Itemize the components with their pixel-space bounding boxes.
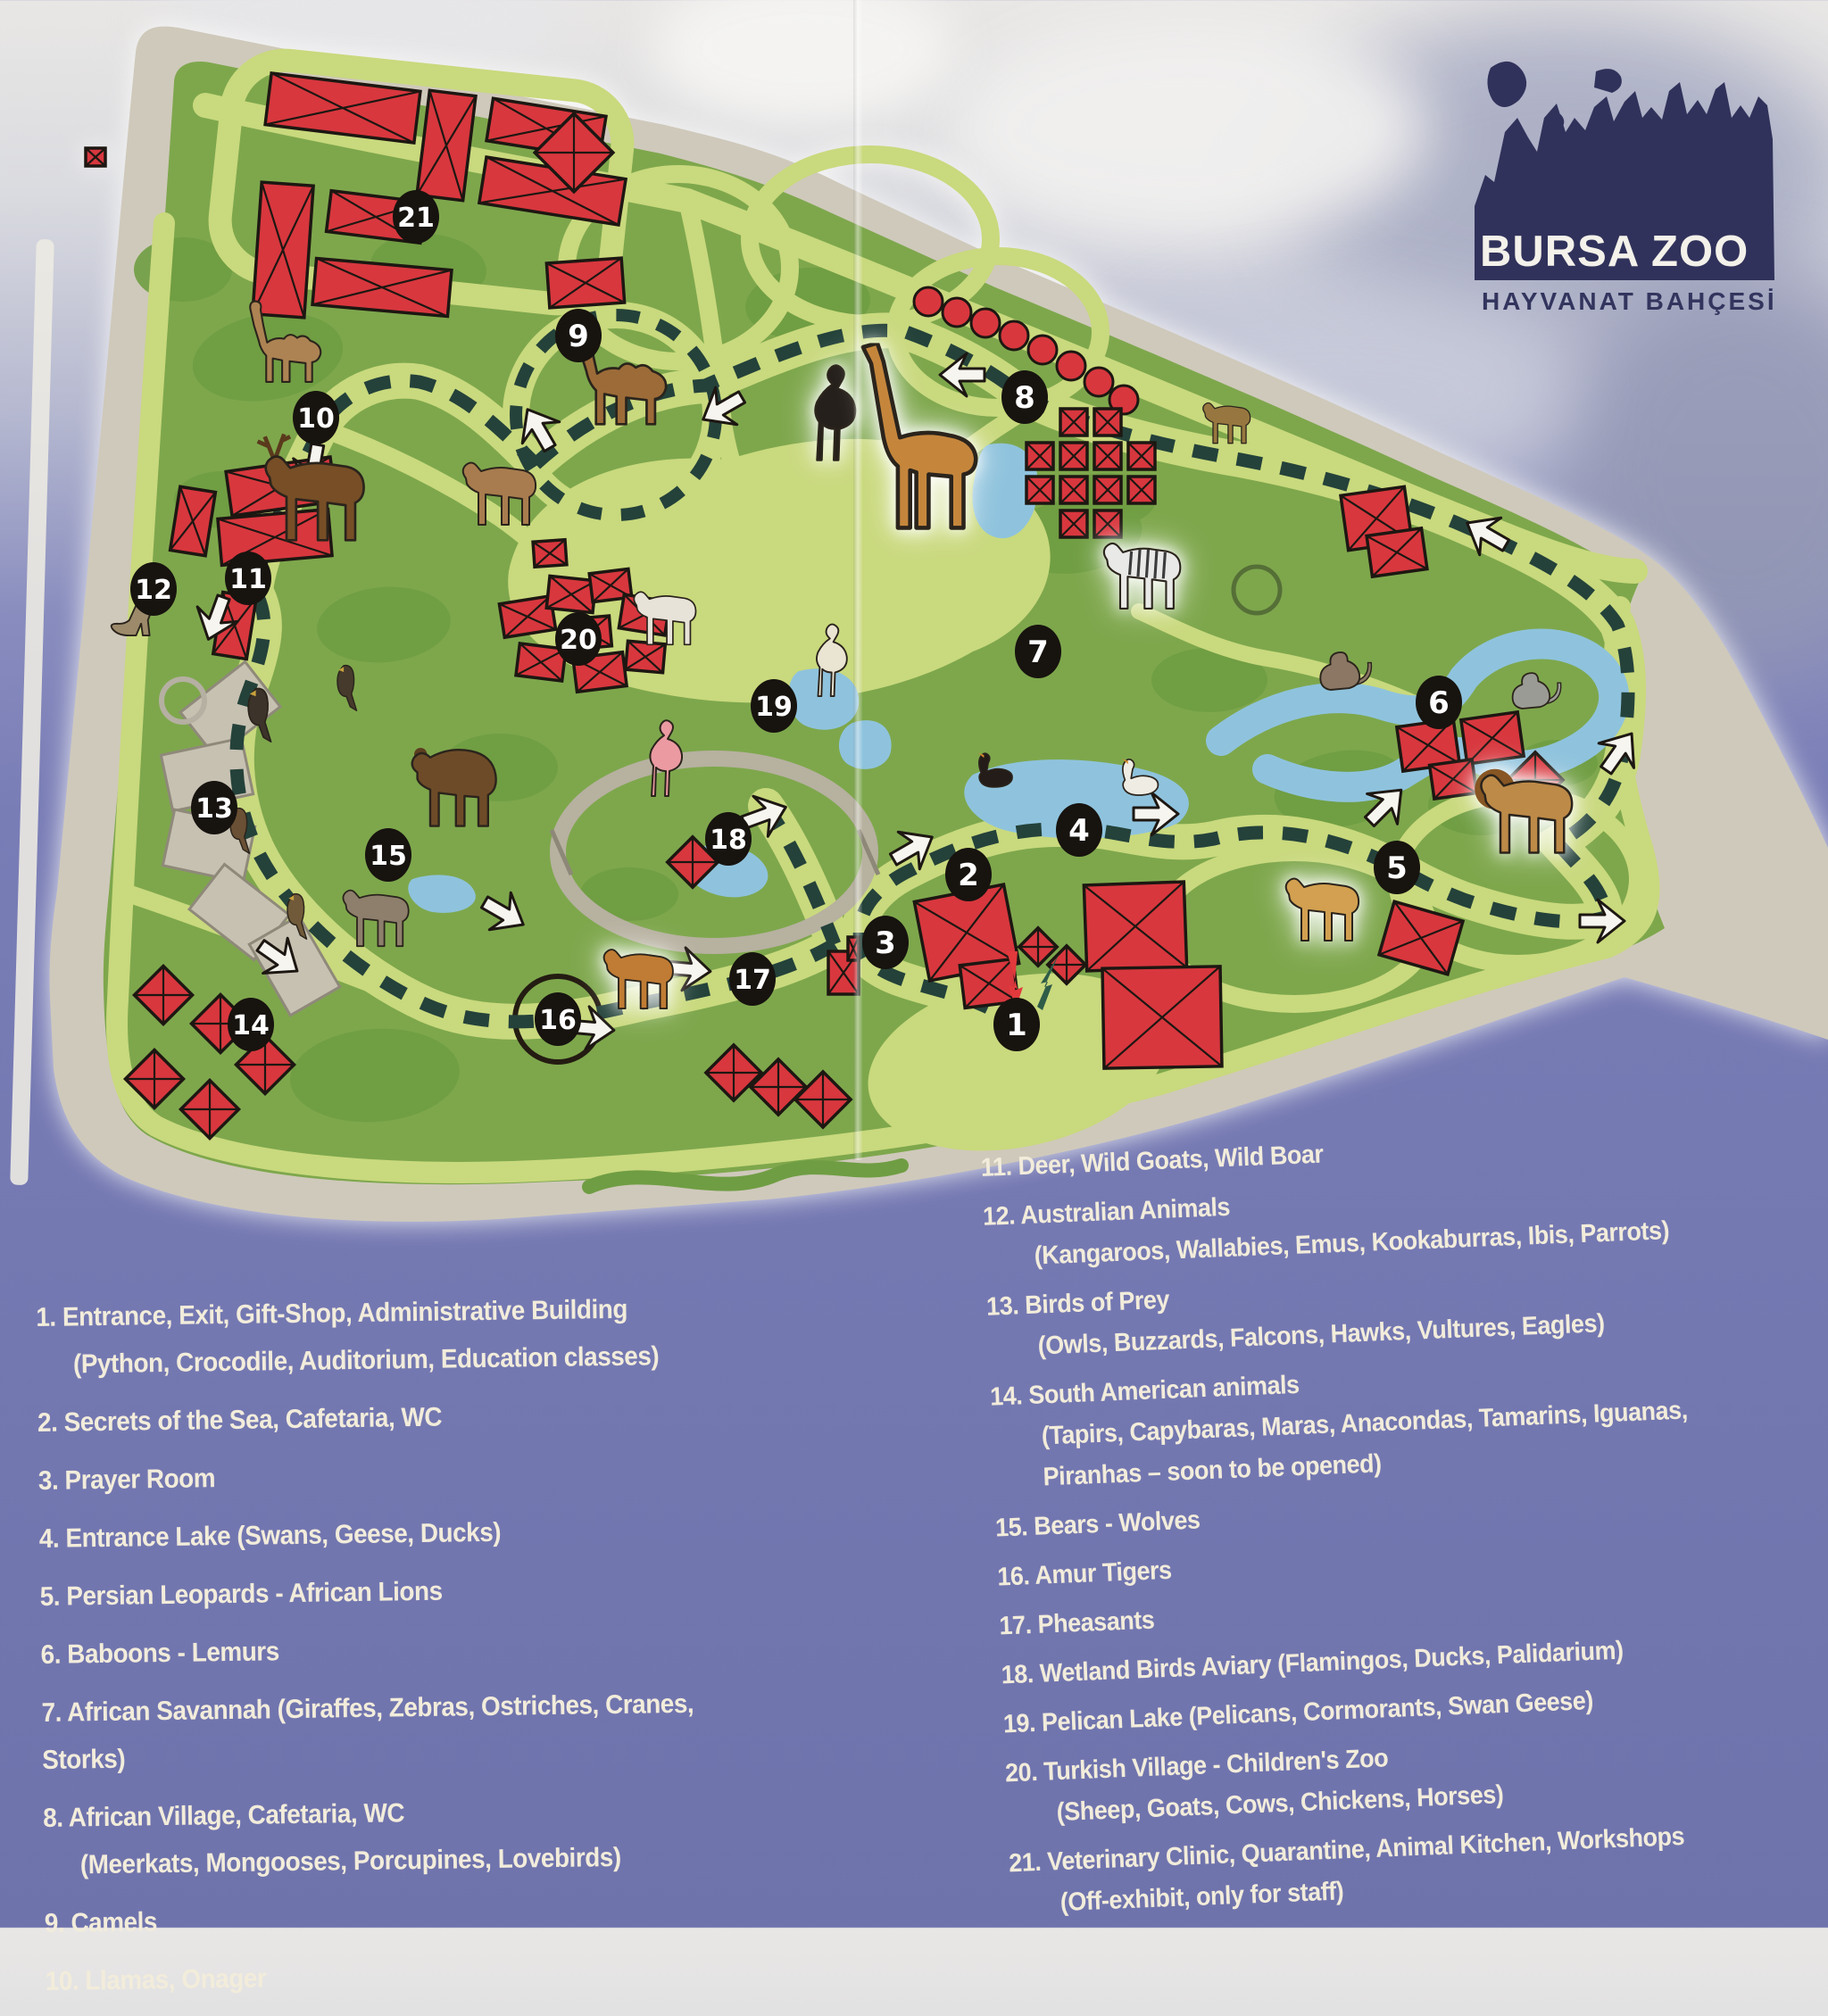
map-marker-11: 11	[225, 552, 271, 605]
legend-column-left: 1. Entrance, Exit, Gift-Shop, Administra…	[36, 1285, 702, 2016]
svg-text:7: 7	[1027, 635, 1049, 670]
map-marker-17: 17	[729, 952, 776, 1006]
legend-item: 14. South American animals(Tapirs, Capyb…	[989, 1344, 1807, 1499]
legend-item-text: 2. Secrets of the Sea, Cafetaria, WC	[37, 1390, 694, 1447]
svg-text:20: 20	[560, 625, 597, 656]
svg-text:13: 13	[195, 793, 233, 825]
red-dot-feature	[914, 287, 943, 316]
map-marker-10: 10	[293, 391, 339, 444]
map-marker-6: 6	[1416, 676, 1462, 729]
building	[1094, 409, 1121, 436]
map-marker-16: 16	[535, 992, 581, 1046]
building	[546, 576, 595, 612]
legend-item: 8. African Village, Cafetaria, WC(Meerka…	[43, 1786, 700, 1889]
svg-text:14: 14	[232, 1010, 270, 1041]
legend-item: 10. Llamas, Onager	[45, 1949, 701, 2005]
map-marker-21: 21	[393, 190, 439, 244]
legend-column-right: 11. Deer, Wild Goats, Wild Boar12. Austr…	[980, 1115, 1824, 1933]
map-marker-1: 1	[993, 998, 1040, 1051]
zoo-brochure: { "logo": { "title": "BURSA ZOO", "subti…	[0, 0, 1828, 1928]
building	[1461, 712, 1524, 764]
svg-text:17: 17	[734, 965, 771, 996]
legend-item: 3. Prayer Room	[38, 1448, 694, 1505]
legend-item: 5. Persian Leopards - African Lions	[39, 1564, 695, 1621]
svg-text:19: 19	[755, 692, 793, 723]
building	[1060, 510, 1087, 537]
building	[1430, 759, 1477, 799]
building	[1026, 477, 1053, 503]
legend-item-text: 4. Entrance Lake (Swans, Geese, Ducks)	[38, 1506, 694, 1563]
logo-subtitle: HAYVANAT BAHÇESİ	[1482, 287, 1785, 316]
svg-text:4: 4	[1068, 813, 1090, 849]
map-marker-13: 13	[191, 781, 237, 834]
svg-text:2: 2	[958, 858, 979, 893]
building	[253, 182, 313, 318]
svg-text:6: 6	[1428, 685, 1450, 721]
red-dot-feature	[1000, 321, 1028, 350]
building	[533, 540, 567, 567]
svg-text:21: 21	[397, 203, 435, 234]
legend-item-text: 7. African Savannah (Giraffes, Zebras, O…	[41, 1680, 698, 1784]
map-marker-20: 20	[555, 612, 602, 666]
building	[1094, 510, 1121, 537]
building	[1094, 443, 1121, 469]
svg-text:8: 8	[1014, 380, 1035, 416]
red-dot-feature	[1028, 336, 1057, 364]
legend-item-text: 10. Llamas, Onager	[45, 1949, 701, 2005]
building	[848, 937, 859, 960]
lake	[839, 720, 892, 769]
map-marker-8: 8	[1001, 370, 1048, 424]
svg-text:18: 18	[710, 825, 747, 856]
logo-title: BURSA ZOO	[1480, 227, 1774, 277]
svg-text:9: 9	[568, 319, 589, 354]
map-marker-4: 4	[1056, 803, 1102, 857]
legend-item-subtext: (Python, Crocodile, Auditorium, Educatio…	[37, 1332, 693, 1389]
map-marker-18: 18	[705, 812, 752, 866]
red-dot-feature	[971, 309, 1000, 337]
legend-item-text: 3. Prayer Room	[38, 1448, 694, 1505]
map-marker-7: 7	[1015, 625, 1061, 678]
red-dot-feature	[1084, 368, 1113, 396]
legend-item-subtext: (Meerkats, Mongooses, Porcupines, Lovebi…	[44, 1833, 700, 1889]
building	[1060, 443, 1087, 469]
map-marker-3: 3	[862, 916, 909, 969]
building	[1060, 477, 1087, 503]
building	[1094, 477, 1121, 503]
legend-item-text: 6. Baboons - Lemurs	[40, 1622, 696, 1679]
legend-item-text: 5. Persian Leopards - African Lions	[39, 1564, 695, 1621]
building	[1084, 882, 1186, 971]
legend-item-text: 9. Camels	[44, 1891, 700, 1947]
building	[546, 258, 624, 308]
building	[626, 641, 666, 673]
svg-text:12: 12	[135, 575, 172, 606]
building	[1367, 528, 1427, 577]
legend-item: 1. Entrance, Exit, Gift-Shop, Administra…	[36, 1285, 693, 1389]
svg-text:1: 1	[1006, 1008, 1027, 1043]
map-marker-14: 14	[228, 998, 274, 1051]
legend-item: 6. Baboons - Lemurs	[40, 1622, 696, 1679]
building	[1060, 409, 1087, 436]
map-marker-12: 12	[130, 562, 177, 616]
building	[1026, 443, 1053, 469]
legend-item: 4. Entrance Lake (Swans, Geese, Ducks)	[38, 1506, 694, 1563]
svg-text:10: 10	[297, 403, 335, 435]
building	[312, 258, 452, 316]
legend-item: 7. African Savannah (Giraffes, Zebras, O…	[41, 1680, 698, 1784]
building	[1128, 443, 1155, 469]
svg-text:16: 16	[539, 1005, 577, 1036]
bursa-zoo-logo: BURSA ZOO HAYVANAT BAHÇESİ	[1455, 32, 1794, 336]
svg-text:5: 5	[1386, 850, 1408, 886]
map-marker-5: 5	[1374, 841, 1420, 894]
building	[1102, 967, 1222, 1068]
red-dot-feature	[1057, 352, 1085, 380]
building	[1128, 477, 1155, 503]
red-dot-feature	[943, 298, 971, 327]
map-marker-15: 15	[365, 828, 411, 882]
legend-item: 9. Camels	[44, 1891, 700, 1947]
map-marker-9: 9	[555, 309, 602, 362]
svg-text:3: 3	[875, 925, 896, 961]
legend-item: 2. Secrets of the Sea, Cafetaria, WC	[37, 1390, 694, 1447]
building	[86, 148, 105, 166]
svg-text:11: 11	[229, 564, 267, 595]
map-marker-2: 2	[945, 848, 992, 901]
map-marker-19: 19	[751, 679, 797, 733]
svg-text:15: 15	[370, 841, 407, 872]
